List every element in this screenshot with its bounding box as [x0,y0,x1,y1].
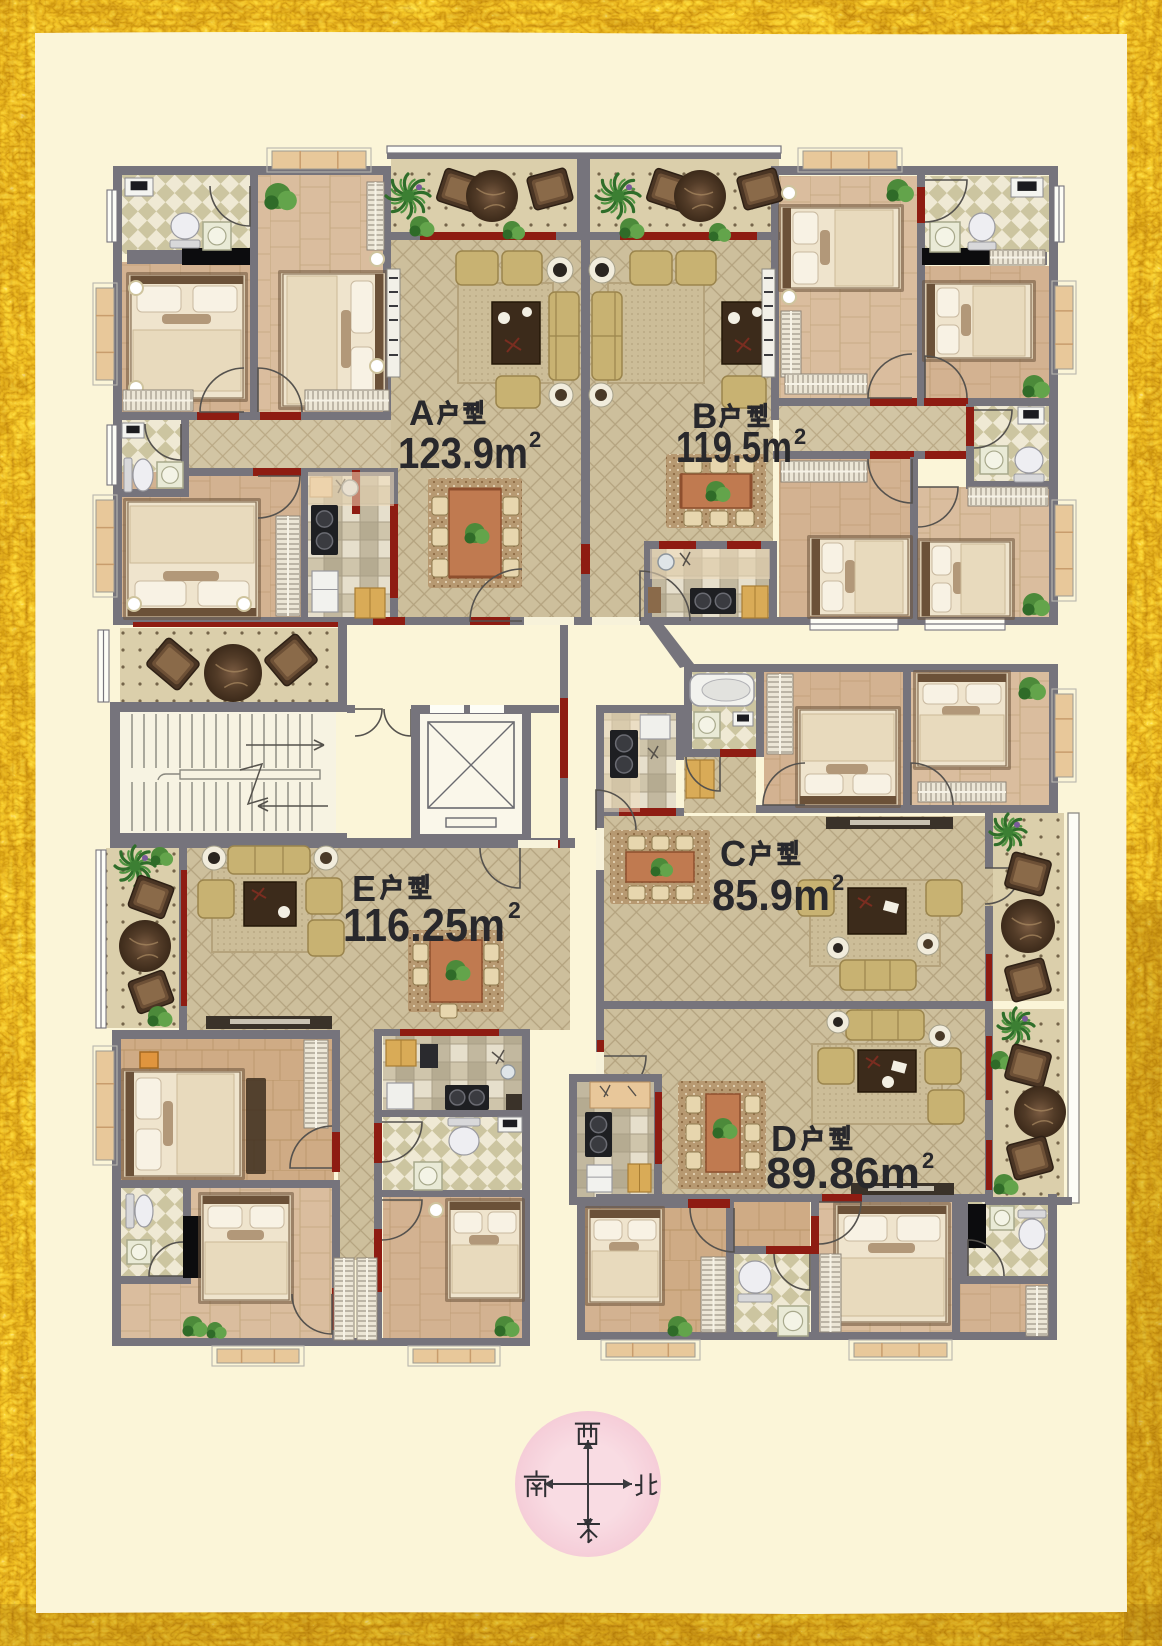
svg-text:123.9m: 123.9m [398,429,528,478]
svg-text:2: 2 [529,427,541,452]
svg-text:2: 2 [794,424,806,449]
svg-text:89.86m: 89.86m [766,1149,920,1198]
svg-text:85.9m: 85.9m [712,871,830,920]
svg-text:A: A [409,394,434,433]
svg-text:2: 2 [922,1148,934,1173]
svg-text:C: C [720,833,746,874]
svg-text:2: 2 [508,897,521,923]
svg-text:116.25m: 116.25m [343,899,505,951]
svg-text:119.5m: 119.5m [676,423,792,472]
svg-text:2: 2 [832,870,844,895]
